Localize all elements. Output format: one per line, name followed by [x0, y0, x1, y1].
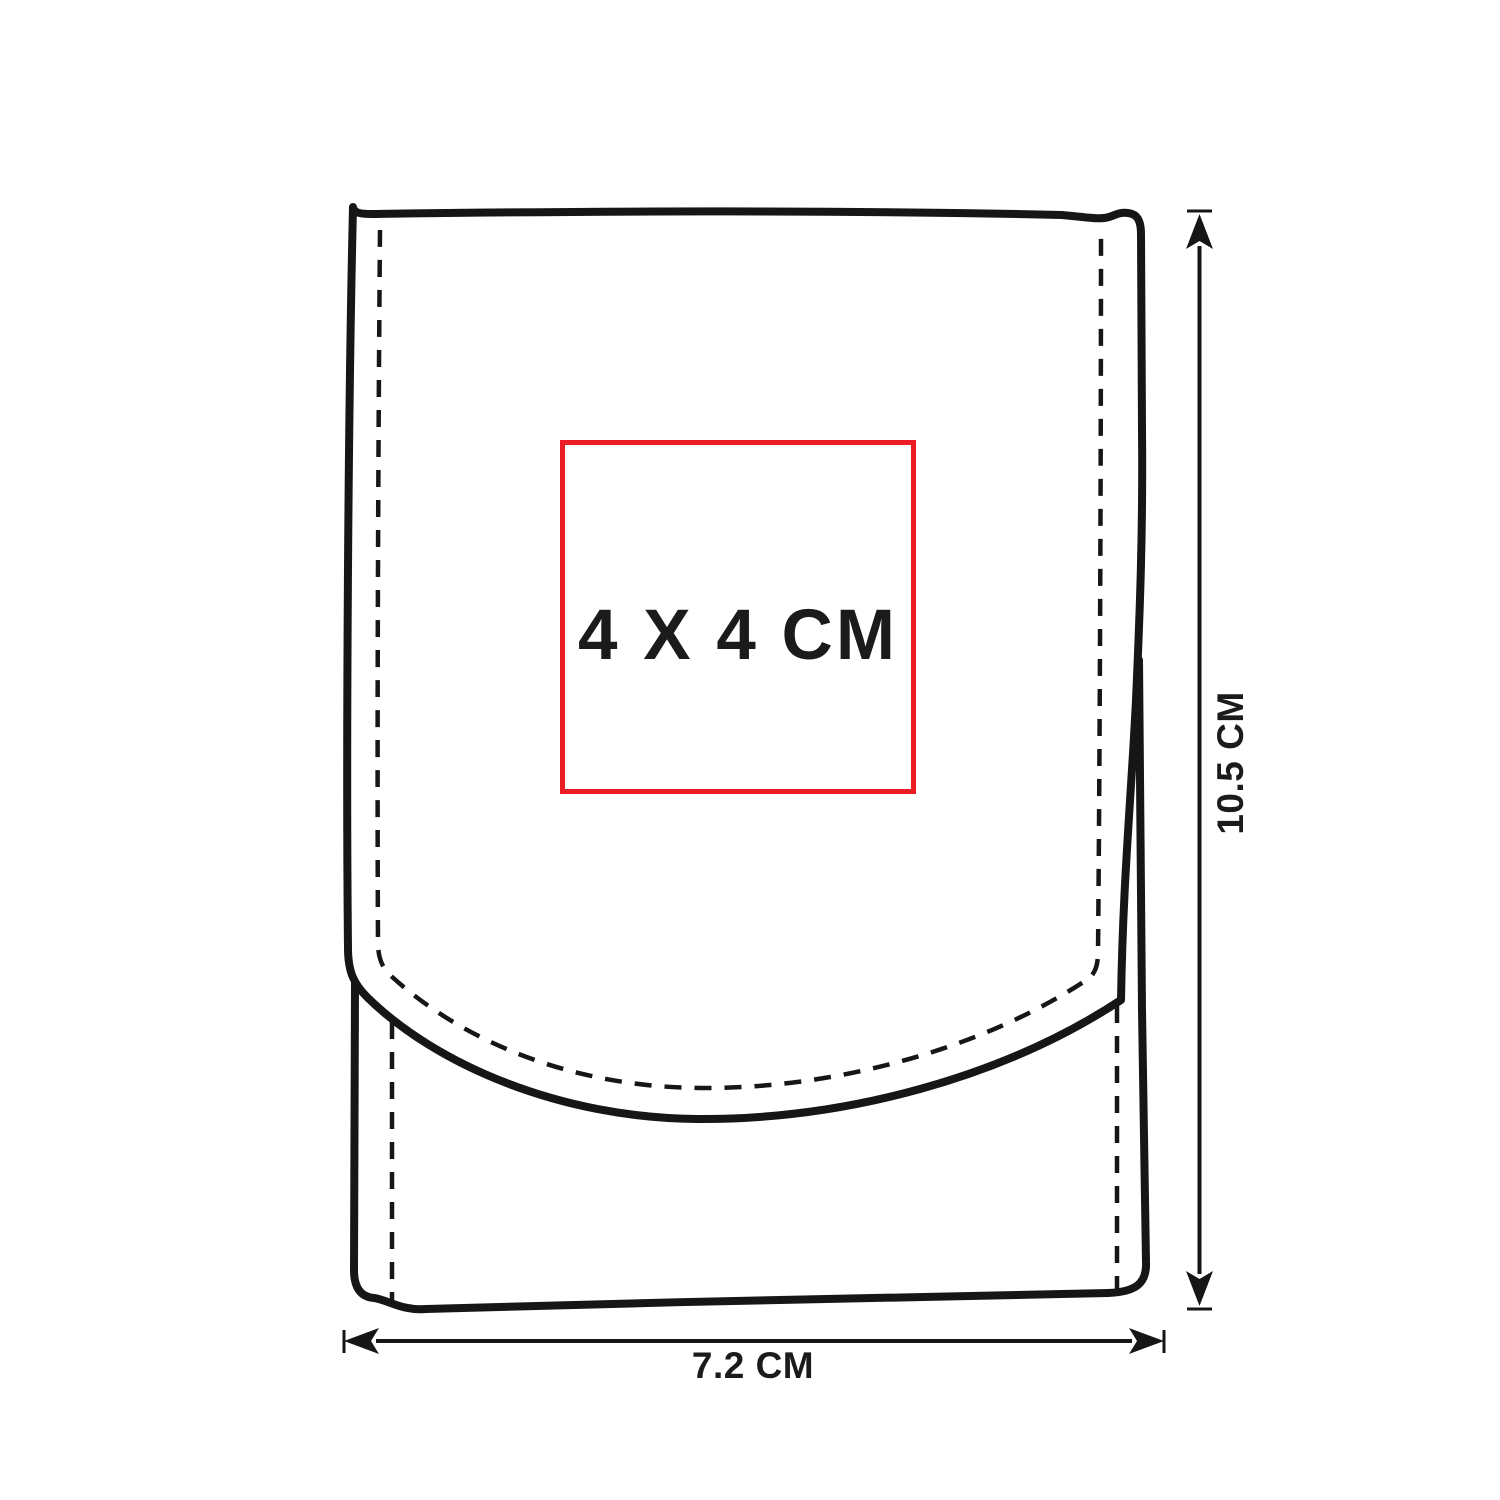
- width-dimension-arrow-left: [344, 1328, 379, 1354]
- width-dimension-label: 7.2 CM: [692, 1345, 814, 1387]
- print-area-box: 4 X 4 CM: [560, 440, 916, 794]
- width-dimension-arrow-right: [1129, 1328, 1164, 1354]
- height-dimension-arrow-top: [1186, 214, 1213, 249]
- print-area-label: 4 X 4 CM: [578, 595, 898, 676]
- height-dimension-label: 10.5 CM: [1210, 691, 1252, 834]
- height-dimension-arrow-bottom: [1186, 1271, 1213, 1306]
- diagram-canvas: 4 X 4 CM 10.5 CM 7.2 CM: [0, 0, 1500, 1500]
